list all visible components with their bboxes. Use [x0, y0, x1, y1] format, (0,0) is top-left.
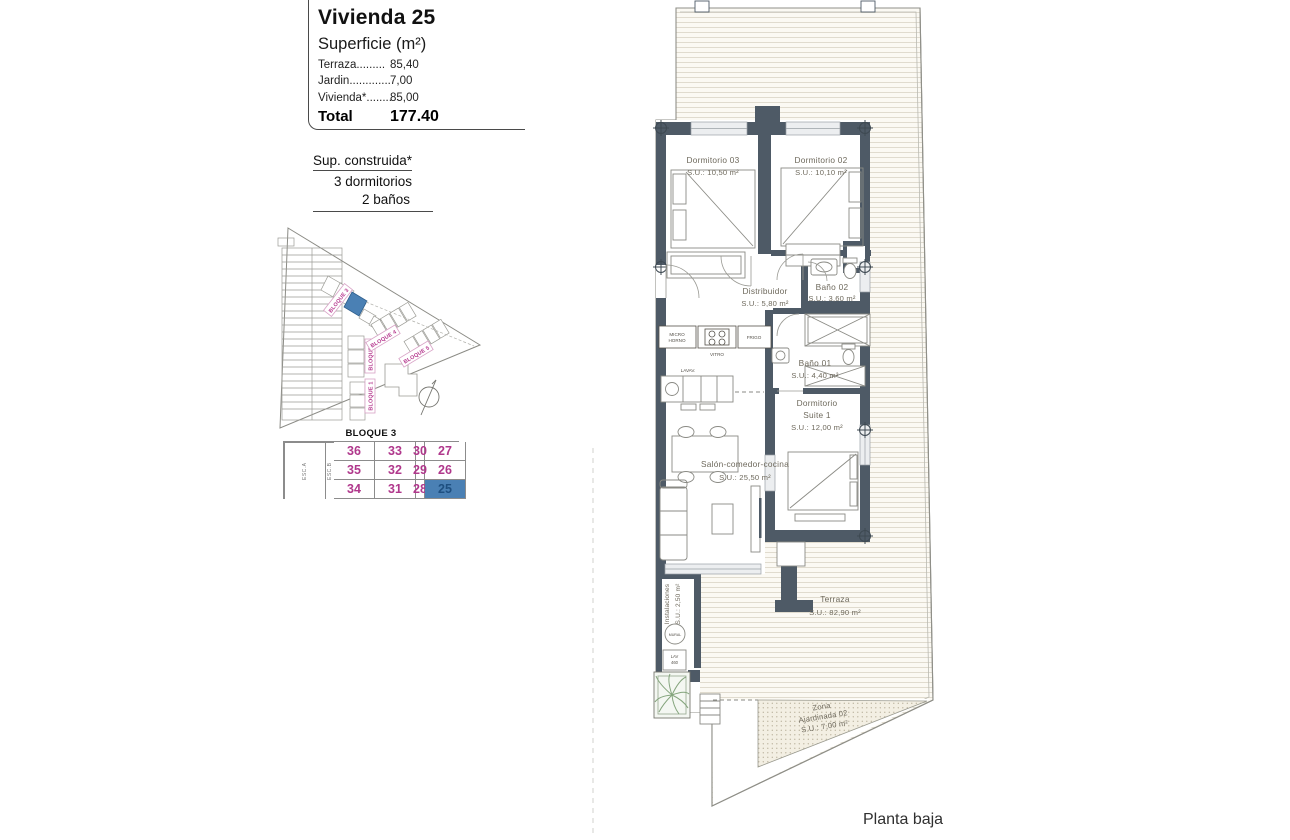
svg-text:LAVAV.: LAVAV. — [681, 368, 696, 373]
svg-text:S.U.: 82,90 m²: S.U.: 82,90 m² — [809, 608, 861, 617]
svg-text:460: 460 — [671, 660, 679, 665]
page-title: Vivienda 25 — [318, 6, 528, 30]
unit-cell: 31 — [375, 480, 416, 499]
unit-cell: 26 — [425, 461, 466, 480]
sup-construida-label: Sup. construida* — [313, 153, 412, 171]
svg-text:FRIGO: FRIGO — [747, 335, 762, 340]
svg-text:S.U.: 5,80 m²: S.U.: 5,80 m² — [741, 299, 789, 308]
svg-text:LAV: LAV — [671, 654, 679, 659]
plan-caption: Planta baja — [863, 811, 943, 829]
floor-plan: Zona Ajardinada 02 S.U.: 7,00 m² — [555, 0, 955, 840]
svg-text:S.U.: 4,40 m²: S.U.: 4,40 m² — [791, 371, 839, 380]
unit-cell: 34 — [334, 480, 375, 499]
terrace-step — [777, 542, 805, 566]
compass-icon — [419, 380, 439, 415]
stairwell-b-label: ESC.B — [325, 442, 334, 499]
surface-subtitle: Superficie (m²) — [318, 35, 528, 54]
wardrobe-dorm03 — [667, 252, 745, 278]
svg-text:Terraza: Terraza — [820, 594, 850, 604]
unit-cell: 29 — [416, 461, 425, 480]
sofa — [660, 480, 687, 560]
dormitorios-label: 3 dormitorios — [313, 174, 433, 189]
svg-text:BLOQUE 1: BLOQUE 1 — [369, 381, 375, 410]
stairwell-a-label: ESC.A — [284, 442, 325, 499]
svg-text:MICRO: MICRO — [669, 332, 685, 337]
surface-legend: Vivienda 25 Superficie (m²) Terraza.....… — [318, 6, 528, 126]
svg-text:S.U.: 2,50 m²: S.U.: 2,50 m² — [675, 583, 682, 625]
surface-row-terraza: Terraza......... 85,40 — [318, 59, 528, 71]
unit-cell-highlighted: 25 — [425, 480, 466, 499]
total-value: 177.40 — [390, 108, 439, 126]
surface-value: 85,40 — [390, 59, 419, 71]
bloque1-units — [350, 382, 365, 420]
unit-table: BLOQUE 3 36 ESC.A 33 30 ESC.B 27 35 32 2… — [283, 428, 459, 499]
exterior-steps — [700, 694, 720, 724]
surface-label: Vivienda*........ — [318, 92, 390, 104]
bloque1-label: BLOQUE 1 — [365, 379, 375, 413]
svg-text:S.U.: 25,50 m²: S.U.: 25,50 m² — [719, 473, 771, 482]
unit-cell: 27 — [425, 442, 466, 461]
unit-cell: 35 — [334, 461, 375, 480]
svg-text:Dormitorio: Dormitorio — [797, 398, 838, 408]
unit-cell: 32 — [375, 461, 416, 480]
site-plan: BLOQUE 3 BLOQUE 2 BLOQUE 1 BLOQUE 4 BLOQ… — [266, 224, 486, 434]
chair-icon — [710, 427, 726, 438]
unit-cell: 28 — [416, 480, 425, 499]
unit-cell: 36 — [334, 442, 375, 461]
surface-row-jardin: Jardin............. 7,00 — [318, 75, 528, 87]
svg-text:Salón-comedor-cocina: Salón-comedor-cocina — [701, 459, 789, 469]
total-label: Total — [318, 108, 390, 126]
svg-text:Suite 1: Suite 1 — [803, 410, 831, 420]
svg-text:Instalaciones: Instalaciones — [664, 583, 671, 624]
garden-zone: Zona Ajardinada 02 S.U.: 7,00 m² — [758, 698, 927, 767]
bloque2-units — [348, 336, 364, 377]
svg-text:S.U.: 10,50 m²: S.U.: 10,50 m² — [687, 168, 739, 177]
surface-value: 7,00 — [390, 75, 412, 87]
svg-text:Baño 02: Baño 02 — [816, 282, 849, 292]
coffee-table — [712, 504, 733, 534]
svg-text:Dormitorio 03: Dormitorio 03 — [686, 155, 739, 165]
tv-bench — [751, 486, 762, 552]
svg-text:VITRO: VITRO — [710, 352, 724, 357]
surface-label: Terraza......... — [318, 59, 390, 71]
toilet-bano02-icon — [843, 258, 857, 279]
unit-cell: 33 — [375, 442, 416, 461]
svg-text:Distribuidor: Distribuidor — [743, 286, 788, 296]
svg-text:S.U.: 3,60 m²: S.U.: 3,60 m² — [808, 294, 856, 303]
surface-total-row: Total 177.40 — [318, 108, 528, 126]
plan-sheet: Vivienda 25 Superficie (m²) Terraza.....… — [0, 0, 1290, 840]
surface-row-vivienda: Vivienda*........ 85,00 — [318, 92, 528, 104]
svg-text:MURAL: MURAL — [669, 633, 682, 637]
svg-text:Dormitorio 02: Dormitorio 02 — [794, 155, 847, 165]
sink-bano02-icon — [811, 259, 837, 275]
surface-value: 85,00 — [390, 92, 419, 104]
svg-text:S.U.: 10,10 m²: S.U.: 10,10 m² — [795, 168, 847, 177]
svg-text:HORNO: HORNO — [668, 338, 686, 343]
banos-label: 2 baños — [313, 192, 433, 207]
sink-bano01-icon — [772, 348, 789, 363]
built-surface-note: Sup. construida* 3 dormitorios 2 baños — [313, 152, 433, 212]
shower-icon — [805, 314, 870, 346]
unit-table-title: BLOQUE 3 — [283, 428, 459, 439]
toilet-bano01-icon — [842, 344, 855, 365]
unit-cell: 30 — [416, 442, 425, 461]
svg-text:Baño 01: Baño 01 — [799, 358, 832, 368]
svg-text:S.U.: 12,00 m²: S.U.: 12,00 m² — [791, 423, 843, 432]
chair-icon — [678, 427, 694, 438]
surface-label: Jardin............. — [318, 75, 390, 87]
